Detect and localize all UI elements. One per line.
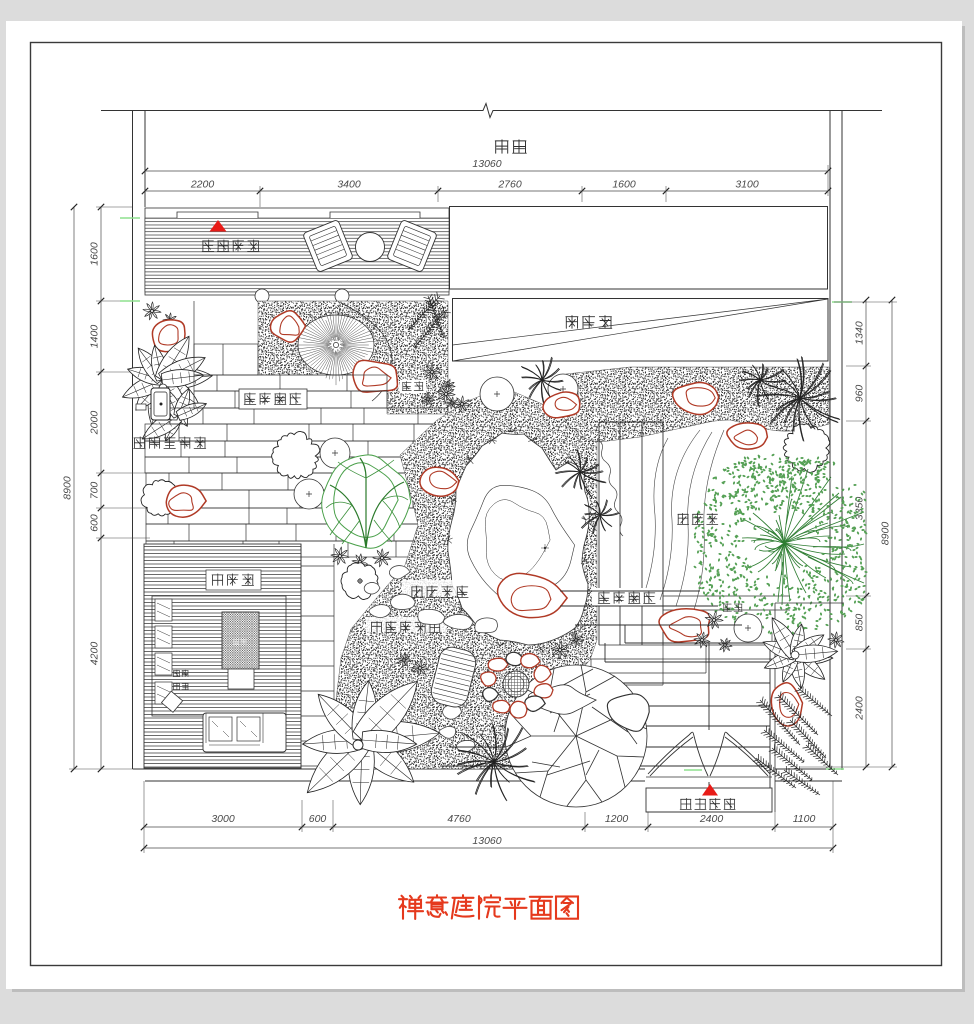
svg-text:1400: 1400 (89, 325, 101, 349)
svg-text:2400: 2400 (699, 813, 724, 825)
svg-text:2200: 2200 (190, 179, 215, 191)
svg-text:850: 850 (854, 614, 866, 632)
svg-text:960: 960 (854, 385, 866, 403)
svg-text:2000: 2000 (89, 411, 101, 436)
svg-text:13060: 13060 (472, 835, 501, 847)
svg-text:2400: 2400 (854, 696, 866, 721)
svg-text:2760: 2760 (497, 179, 522, 191)
svg-text:3000: 3000 (211, 813, 235, 825)
svg-text:13060: 13060 (472, 158, 501, 170)
svg-text:1100: 1100 (793, 813, 816, 825)
svg-text:600: 600 (309, 813, 327, 825)
svg-text:8900: 8900 (880, 522, 892, 546)
svg-text:1200: 1200 (605, 813, 629, 825)
svg-text:3100: 3100 (735, 179, 759, 191)
svg-text:1600: 1600 (89, 242, 101, 266)
svg-text:600: 600 (89, 514, 101, 532)
svg-text:3400: 3400 (337, 179, 361, 191)
svg-text:1600: 1600 (612, 179, 636, 191)
svg-text:700: 700 (89, 482, 101, 500)
svg-text:4760: 4760 (447, 813, 471, 825)
svg-text:1340: 1340 (854, 321, 866, 345)
svg-text:8900: 8900 (62, 476, 74, 500)
svg-text:4200: 4200 (89, 642, 101, 666)
